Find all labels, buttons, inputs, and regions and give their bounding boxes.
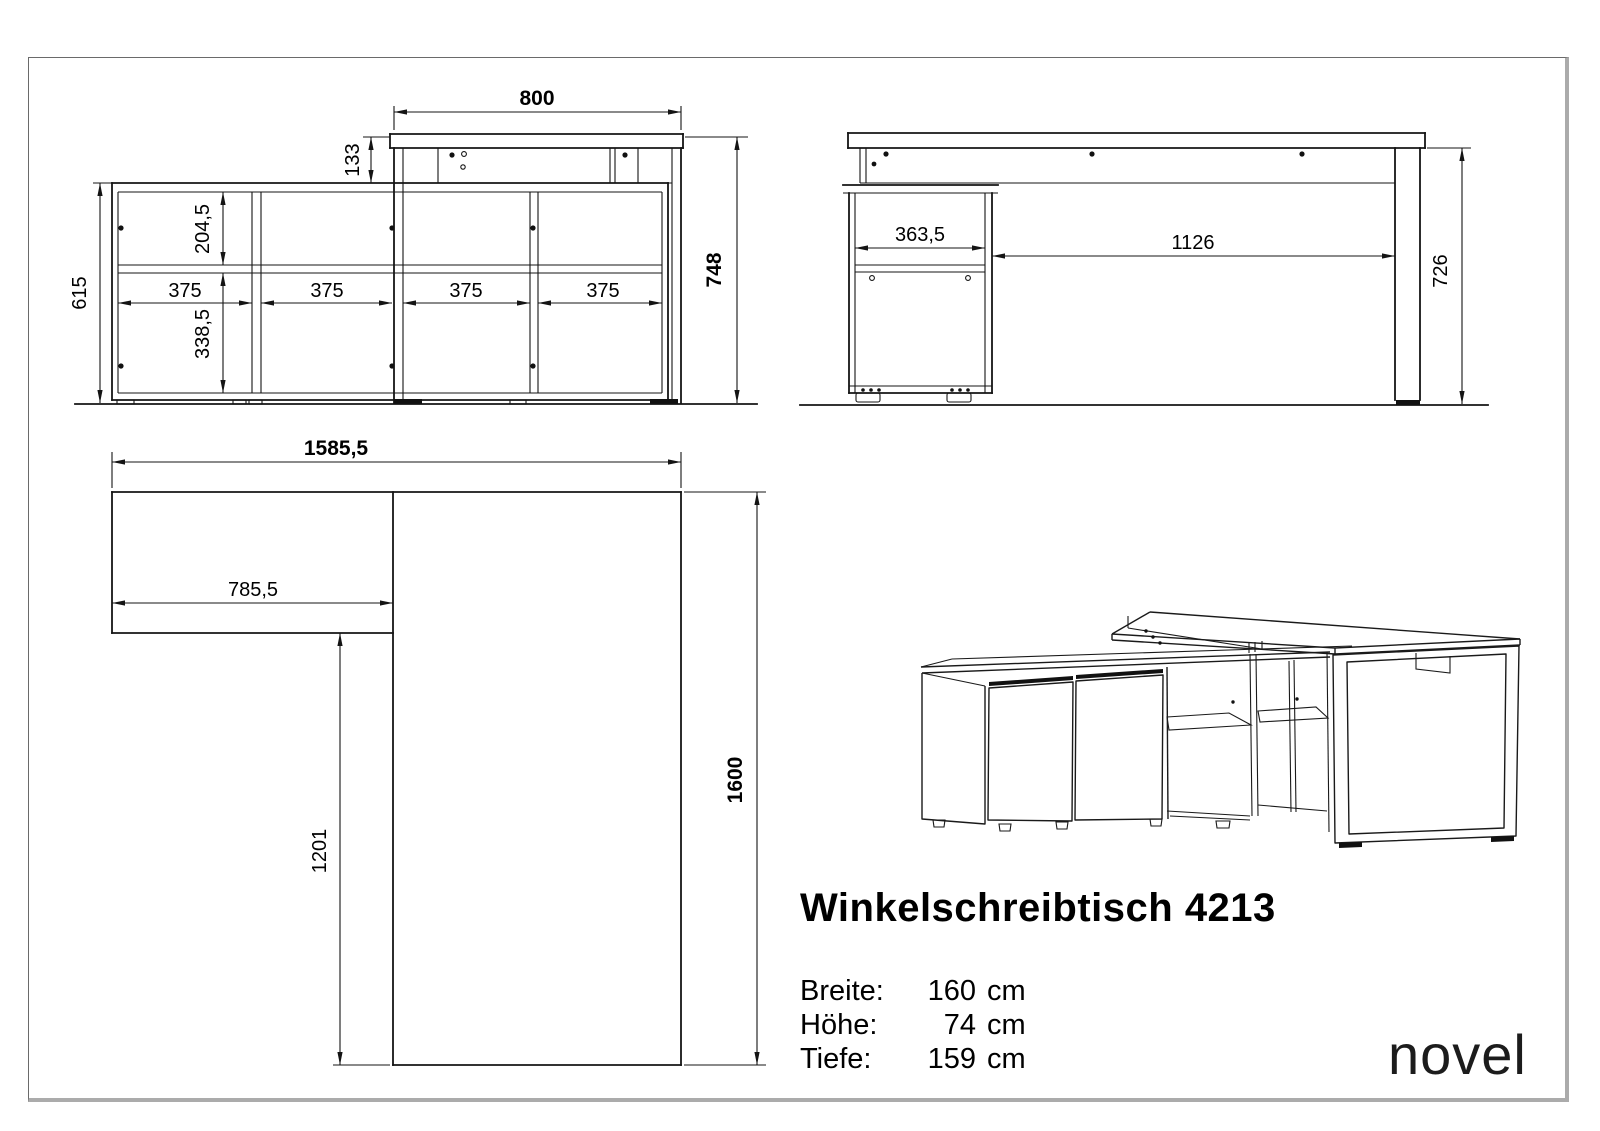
dim-plan-total-depth: 1600 (724, 757, 747, 804)
drawing-title: Winkelschreibtisch 4213 (800, 886, 1276, 931)
spec-value: 74 (920, 1008, 976, 1042)
plan-view: 1585,5 785,5 1201 1600 (112, 437, 766, 1065)
brand-logo: novel (1388, 1022, 1527, 1087)
dim-plan-return-width: 785,5 (228, 579, 278, 601)
side-view: 363,5 1126 726 (800, 133, 1488, 405)
isometric-view (921, 612, 1520, 848)
spec-unit: cm (987, 975, 1026, 1007)
spec-label: Tiefe: (800, 1042, 920, 1076)
technical-drawing: 800 133 204,5 615 375 375 375 375 338,5 (0, 0, 1600, 1131)
dim-compartment-1: 375 (168, 280, 201, 302)
spec-label: Breite: (800, 974, 920, 1008)
dim-side-cabinet: 363,5 (895, 224, 945, 246)
screw-marks (449, 152, 627, 170)
apron-screws (872, 151, 1305, 166)
spec-row-hoehe: Höhe:74cm (800, 1008, 1026, 1042)
dim-front-side-height: 615 (69, 276, 91, 309)
spec-unit: cm (987, 1043, 1026, 1075)
spec-unit: cm (987, 1009, 1026, 1041)
dim-plan-total-width: 1585,5 (304, 437, 369, 460)
dim-front-width: 800 (519, 87, 554, 110)
dim-front-total-height: 748 (703, 252, 726, 287)
spec-row-tiefe: Tiefe:159cm (800, 1042, 1026, 1076)
dim-front-upper-inner: 204,5 (192, 204, 214, 254)
dim-side-span: 1126 (1171, 232, 1214, 254)
dim-compartment-3: 375 (449, 280, 482, 302)
spec-value: 160 (920, 974, 976, 1008)
spec-value: 159 (920, 1042, 976, 1076)
dim-side-leg-height: 726 (1430, 254, 1452, 287)
spec-row-breite: Breite:160cm (800, 974, 1026, 1008)
side-dimensions: 363,5 1126 726 (855, 148, 1471, 404)
dim-front-lower-inner: 338,5 (192, 309, 214, 359)
front-view: 800 133 204,5 615 375 375 375 375 338,5 (69, 87, 757, 404)
plan-dimensions: 1585,5 785,5 1201 1600 (112, 437, 766, 1065)
dim-front-offset: 133 (342, 143, 364, 176)
drawing-sheet: 800 133 204,5 615 375 375 375 375 338,5 (0, 0, 1600, 1131)
dim-plan-return-depth: 1201 (309, 829, 331, 874)
dim-compartment-2: 375 (310, 280, 343, 302)
spec-table: Breite:160cm Höhe:74cm Tiefe:159cm (800, 974, 1026, 1076)
dim-compartment-4: 375 (586, 280, 619, 302)
cabinet-foot-screws (861, 388, 970, 392)
spec-label: Höhe: (800, 1008, 920, 1042)
